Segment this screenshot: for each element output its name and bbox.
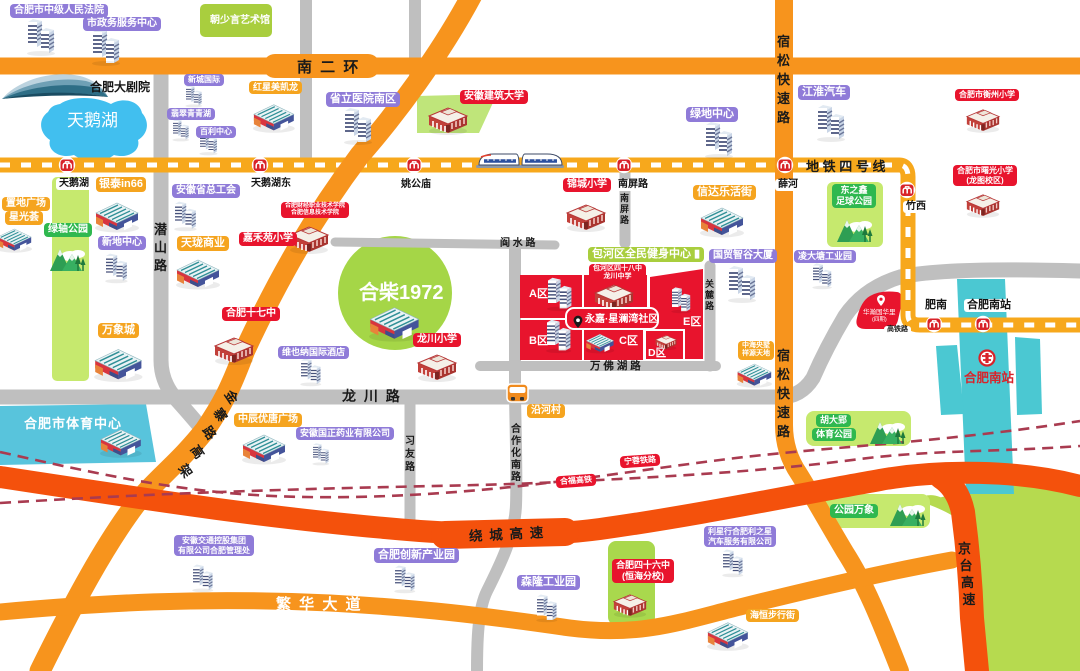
svg-text:合肥市体育中心: 合肥市体育中心 [24, 416, 122, 431]
svg-text:地 铁 四 号 线: 地 铁 四 号 线 [806, 159, 885, 174]
svg-text:南 二 环: 南 二 环 [297, 58, 360, 76]
svg-text:天鹅湖: 天鹅湖 [67, 111, 118, 130]
svg-text:龙 川 路: 龙 川 路 [341, 388, 402, 404]
svg-text:合作化南路: 合作化南路 [510, 422, 522, 483]
svg-text:合柴1972: 合柴1972 [359, 280, 444, 304]
svg-text:永嘉·星澜湾社区: 永嘉·星澜湾社区 [584, 312, 658, 325]
svg-text:宿松快速路: 宿松快速路 [777, 34, 791, 125]
svg-text:南屏路: 南屏路 [620, 192, 630, 225]
svg-text:宿松快速路: 宿松快速路 [777, 348, 791, 439]
svg-text:(四期): (四期) [872, 316, 887, 323]
svg-text:B区: B区 [529, 334, 548, 347]
svg-text:繁 华 大 道: 繁 华 大 道 [275, 595, 363, 613]
svg-text:E区: E区 [683, 315, 701, 328]
svg-text:华瀚国华里: 华瀚国华里 [863, 307, 896, 316]
svg-text:关麓路: 关麓路 [704, 278, 715, 311]
svg-text:习友路: 习友路 [405, 435, 416, 473]
svg-text:阎 水 路: 阎 水 路 [500, 236, 537, 249]
svg-text:A区: A区 [529, 287, 548, 300]
svg-text:万 佛 湖 路: 万 佛 湖 路 [589, 359, 641, 372]
svg-text:C区: C区 [619, 334, 638, 347]
svg-text:潜山路: 潜山路 [154, 222, 168, 273]
svg-text:合肥南站: 合肥南站 [964, 370, 1015, 385]
